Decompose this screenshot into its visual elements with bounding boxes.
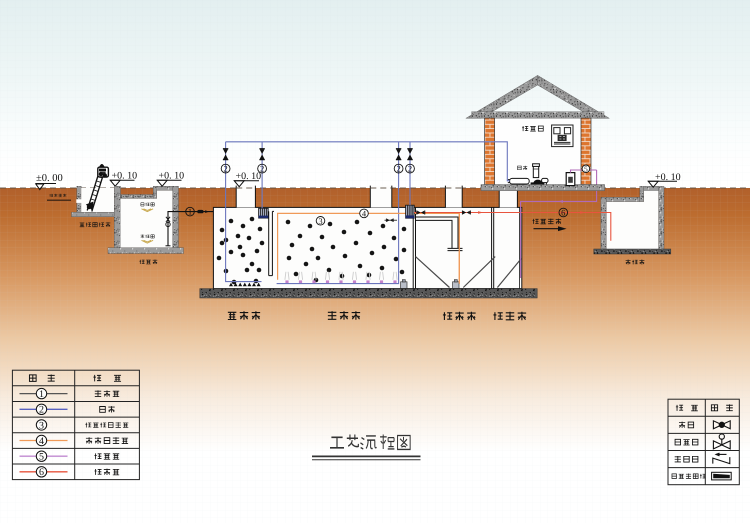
svg-text:2: 2 xyxy=(396,164,400,174)
svg-text:5: 5 xyxy=(39,452,44,463)
svg-text:6: 6 xyxy=(561,208,565,218)
svg-text:3: 3 xyxy=(318,216,322,226)
svg-text:1: 1 xyxy=(39,389,44,400)
svg-text:2: 2 xyxy=(408,164,412,174)
svg-text:5: 5 xyxy=(584,165,588,174)
svg-text:±0. 00: ±0. 00 xyxy=(36,173,63,184)
svg-text:3: 3 xyxy=(39,420,44,431)
svg-text:1: 1 xyxy=(188,207,192,217)
svg-text:2: 2 xyxy=(223,164,227,174)
svg-text:2: 2 xyxy=(39,405,44,416)
svg-text:4: 4 xyxy=(39,436,44,447)
svg-text:6: 6 xyxy=(39,467,44,478)
